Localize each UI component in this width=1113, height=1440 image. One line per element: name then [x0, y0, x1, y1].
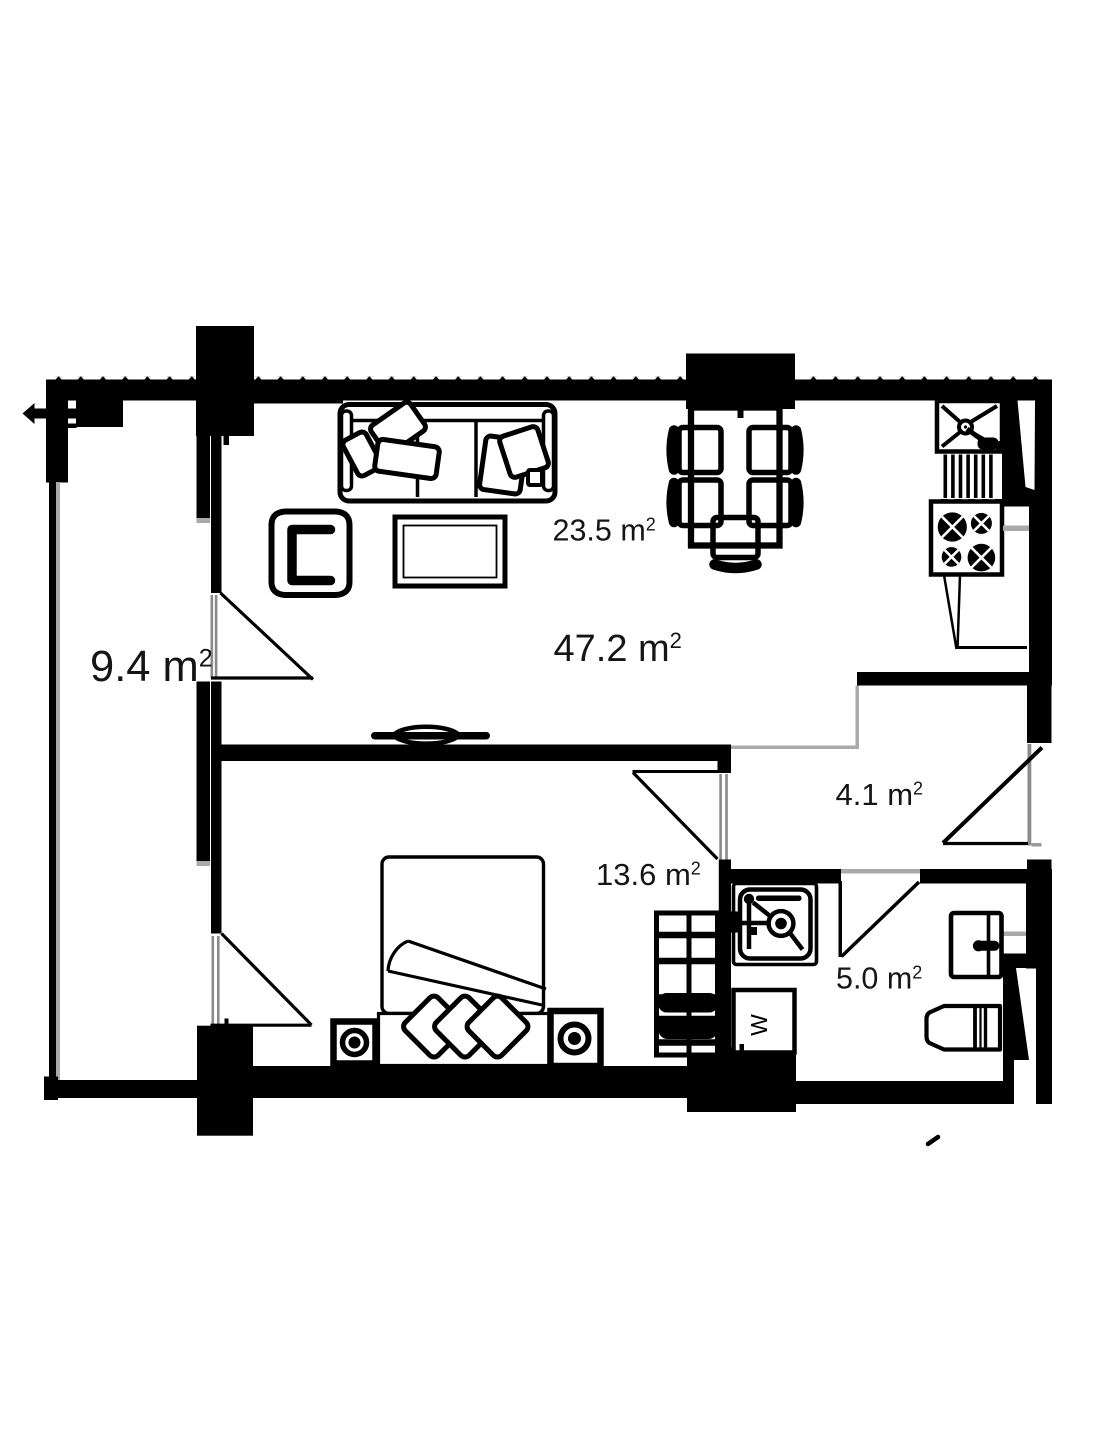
svg-text:W: W: [746, 1014, 772, 1036]
svg-text:9.4 m2: 9.4 m2: [90, 643, 213, 691]
svg-text:5.0 m2: 5.0 m2: [836, 962, 922, 996]
svg-text:4.1 m2: 4.1 m2: [836, 777, 924, 812]
svg-text:13.6 m2: 13.6 m2: [596, 857, 701, 892]
svg-text:23.5 m2: 23.5 m2: [553, 514, 656, 548]
svg-text:47.2 m2: 47.2 m2: [554, 628, 682, 670]
